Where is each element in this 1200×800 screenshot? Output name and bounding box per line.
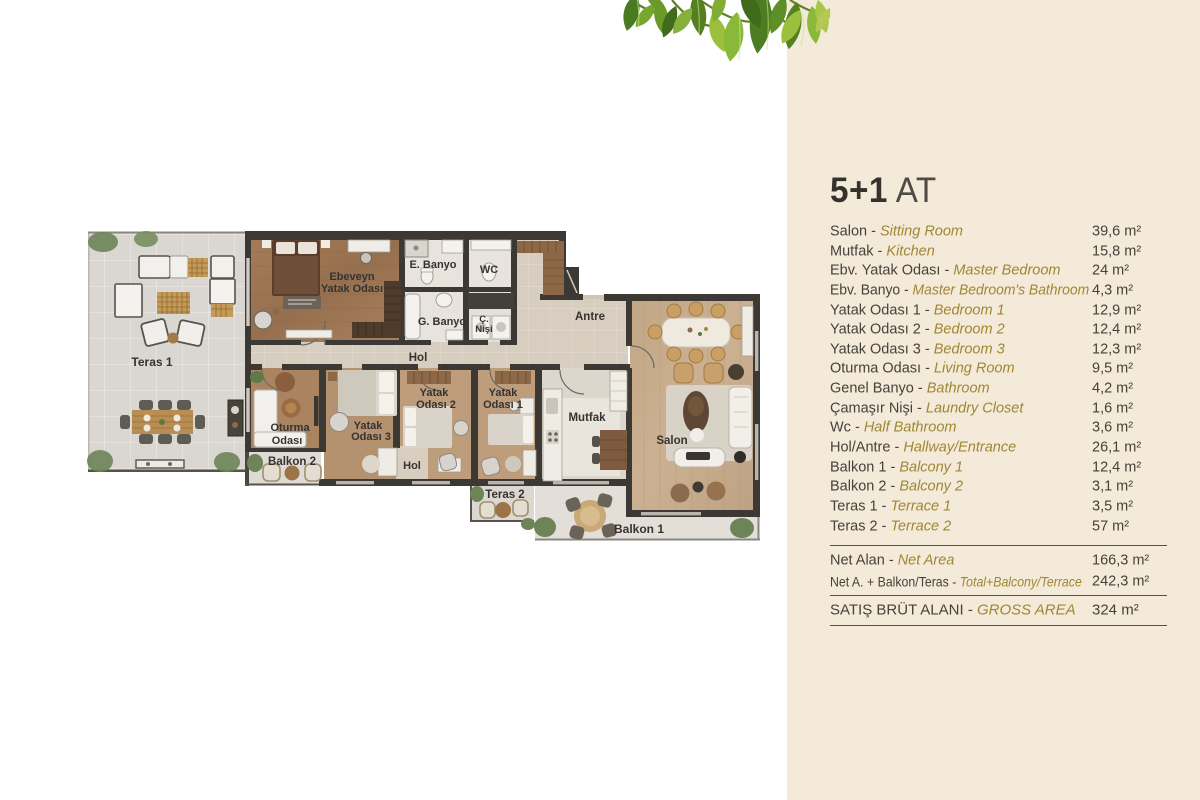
- svg-text:Balkon 2: Balkon 2: [268, 456, 316, 468]
- svg-text:G. Banyo: G. Banyo: [418, 316, 467, 328]
- svg-text:WC: WC: [480, 264, 498, 276]
- svg-text:Yatak Odası: Yatak Odası: [321, 283, 383, 295]
- svg-text:Odası 2: Odası 2: [416, 399, 456, 411]
- svg-text:Nişi: Nişi: [475, 324, 492, 335]
- svg-text:Mutfak: Mutfak: [568, 412, 606, 424]
- svg-text:Yatak: Yatak: [489, 387, 519, 399]
- svg-text:Antre: Antre: [575, 311, 605, 323]
- svg-text:E. Banyo: E. Banyo: [409, 259, 456, 271]
- svg-text:Teras 2: Teras 2: [485, 489, 524, 501]
- svg-text:Oturma: Oturma: [270, 422, 310, 434]
- svg-text:Ebeveyn: Ebeveyn: [329, 271, 375, 283]
- svg-text:Hol: Hol: [403, 460, 421, 472]
- svg-text:Hol: Hol: [409, 352, 428, 364]
- svg-text:Odası 1: Odası 1: [483, 399, 523, 411]
- svg-text:Odası: Odası: [272, 435, 303, 447]
- svg-text:Odası 3: Odası 3: [351, 431, 391, 443]
- svg-text:Teras 1: Teras 1: [131, 355, 172, 369]
- svg-text:Yatak: Yatak: [420, 387, 450, 399]
- svg-text:Balkon 1: Balkon 1: [614, 522, 664, 536]
- svg-text:Salon: Salon: [656, 435, 687, 447]
